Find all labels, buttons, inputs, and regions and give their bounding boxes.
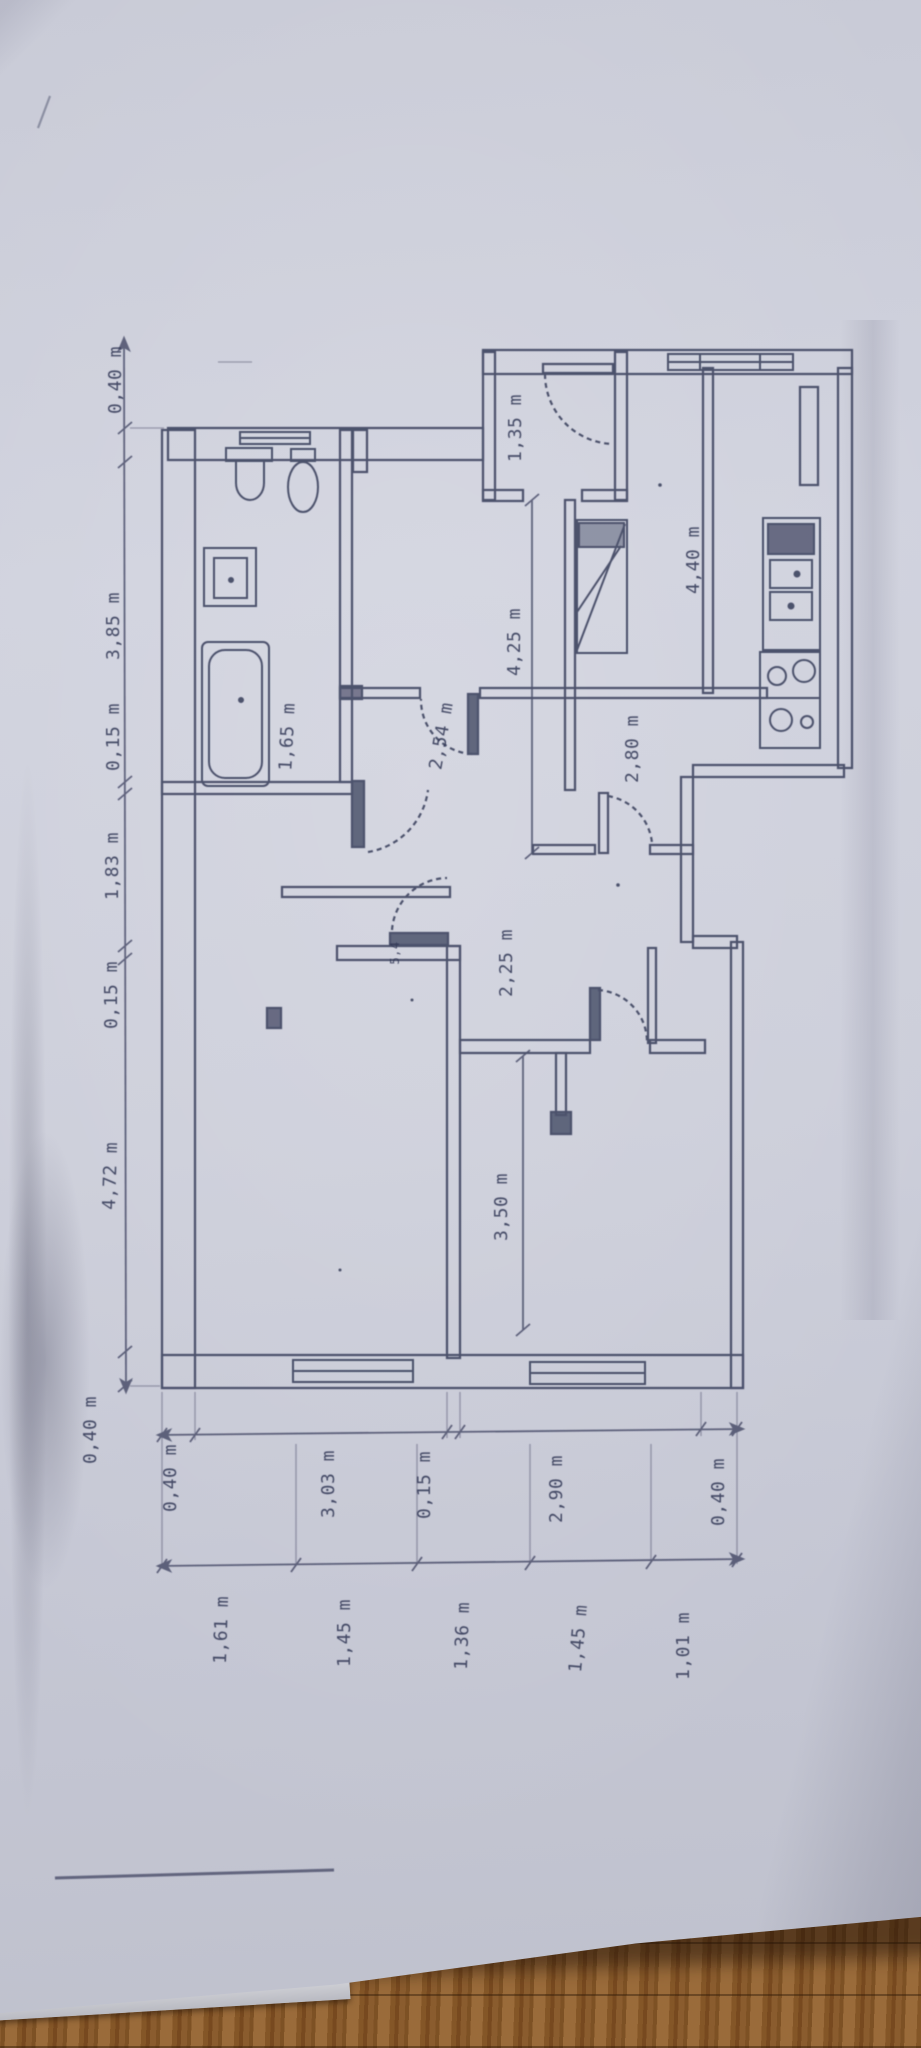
- wall-stub: [800, 387, 818, 485]
- wall-segment: [460, 1040, 590, 1053]
- floor-plan-photo: 0,40 m 3,85 m 0,15 m 1,83 m 0,15 m 4,72 …: [0, 0, 921, 2048]
- dim-label: 1,01 m: [673, 1612, 694, 1680]
- dim-label: 1,45 m: [565, 1604, 592, 1674]
- dim-label: 4,72 m: [99, 1141, 122, 1210]
- ink-blob: [267, 1008, 281, 1028]
- stove-burner: [768, 667, 786, 685]
- ink-dot: [339, 1269, 342, 1272]
- dim-label: 0,15 m: [414, 1451, 435, 1519]
- room-dim-label: 1,65 m: [275, 702, 300, 771]
- bathroom-fixtures: [202, 448, 318, 786]
- door-swing-arc: [368, 790, 428, 852]
- sink-drain: [795, 572, 800, 577]
- wall-segment: [681, 777, 693, 942]
- ink-dot: [616, 883, 620, 887]
- stove: [760, 652, 820, 748]
- door-mark-label: 5,4: [388, 941, 402, 964]
- toilet-bowl: [236, 461, 264, 500]
- stove-burner: [793, 660, 815, 682]
- wall-segment: [838, 368, 852, 768]
- bathtub-inner: [209, 650, 262, 778]
- dim-label: 1,61 m: [210, 1595, 233, 1664]
- bathtub: [202, 642, 269, 786]
- wardrobe-diagonal: [577, 546, 621, 612]
- wall-segment: [447, 946, 460, 1358]
- bathtub-drain: [239, 698, 243, 702]
- wall-segment: [731, 942, 743, 1388]
- dim-label: 0,40 m: [708, 1458, 729, 1526]
- ink-blob: [340, 686, 362, 699]
- wall-segment: [168, 428, 483, 460]
- wall-segment: [480, 688, 767, 698]
- dim-label: 2,90 m: [546, 1455, 567, 1523]
- door-leaf: [468, 694, 478, 754]
- wall-segment: [693, 765, 844, 777]
- windows: [240, 354, 793, 1384]
- room-dim-label: 2,54 m: [425, 701, 457, 772]
- dim-label: 0,15 m: [103, 703, 124, 771]
- kitchen-dark-unit: [768, 524, 814, 554]
- bottom-outer-chain-line: [158, 1429, 743, 1435]
- stove-burner: [801, 716, 813, 728]
- dim-label: 1,36 m: [451, 1601, 474, 1670]
- kitchen-sink-bowl: [770, 560, 812, 588]
- stove-burner: [770, 709, 792, 731]
- door-leaf: [599, 793, 608, 853]
- dim-label: 0,15 m: [101, 961, 122, 1029]
- bottom-inner-chain-line: [158, 1559, 743, 1566]
- door-swing-arc: [608, 796, 652, 843]
- wall-segment: [353, 430, 367, 472]
- wall-segment: [650, 845, 693, 854]
- room-dim-label: 2,80 m: [622, 715, 643, 783]
- dim-label: 1,83 m: [102, 832, 123, 900]
- dim-label: 3,85 m: [103, 592, 124, 660]
- ink-dot: [658, 483, 662, 487]
- wall-segment: [162, 782, 352, 794]
- bidet: [288, 462, 318, 512]
- wall-segment: [703, 368, 713, 693]
- door-swing-arc: [598, 990, 647, 1042]
- dim-label: 1,45 m: [334, 1599, 355, 1667]
- door-leaf: [352, 781, 364, 847]
- entry-door-swing-arc: [545, 374, 613, 444]
- ink-dot: [411, 999, 414, 1002]
- floor-plan-drawing: 0,40 m 3,85 m 0,15 m 1,83 m 0,15 m 4,72 …: [0, 0, 921, 2048]
- dim-label: 0,40 m: [160, 1444, 181, 1512]
- wall-segment: [648, 948, 656, 1043]
- room-dim-label: 1,35 m: [505, 394, 526, 462]
- door-leaf: [590, 988, 600, 1040]
- room-dim-label: 3,50 m: [491, 1173, 512, 1241]
- door-swing-arc: [392, 878, 447, 930]
- dim-label: 3,03 m: [318, 1450, 339, 1518]
- wall-segment: [162, 430, 195, 1388]
- wall-segment: [162, 1355, 743, 1388]
- washbasin-drain: [229, 578, 233, 582]
- dim-label: 0,40 m: [80, 1396, 101, 1464]
- interior-walls: [162, 352, 818, 1358]
- sink-drain: [789, 604, 794, 609]
- wall-segment: [565, 500, 575, 790]
- left-dimension-chain-line: [124, 338, 126, 1392]
- wall-segment: [340, 430, 352, 782]
- dimension-labels: 0,40 m 3,85 m 0,15 m 1,83 m 0,15 m 4,72 …: [80, 346, 729, 1680]
- room-dim-label: 4,40 m: [683, 526, 704, 594]
- entry-door-leaf: [543, 364, 613, 373]
- dim-label: 0,40 m: [105, 346, 126, 414]
- pen-mark: [38, 96, 50, 128]
- paper-sheet: 0,40 m 3,85 m 0,15 m 1,83 m 0,15 m 4,72 …: [0, 0, 921, 2048]
- pen-line: [55, 1870, 334, 1878]
- room-dim-label: 2,25 m: [496, 929, 517, 997]
- room-dim-label: 4,25 m: [504, 608, 525, 676]
- wall-segment: [533, 845, 595, 854]
- wall-stub: [556, 1053, 566, 1115]
- chimney-block: [551, 1112, 571, 1134]
- wall-segment: [650, 1040, 705, 1053]
- wall-segment: [282, 887, 450, 897]
